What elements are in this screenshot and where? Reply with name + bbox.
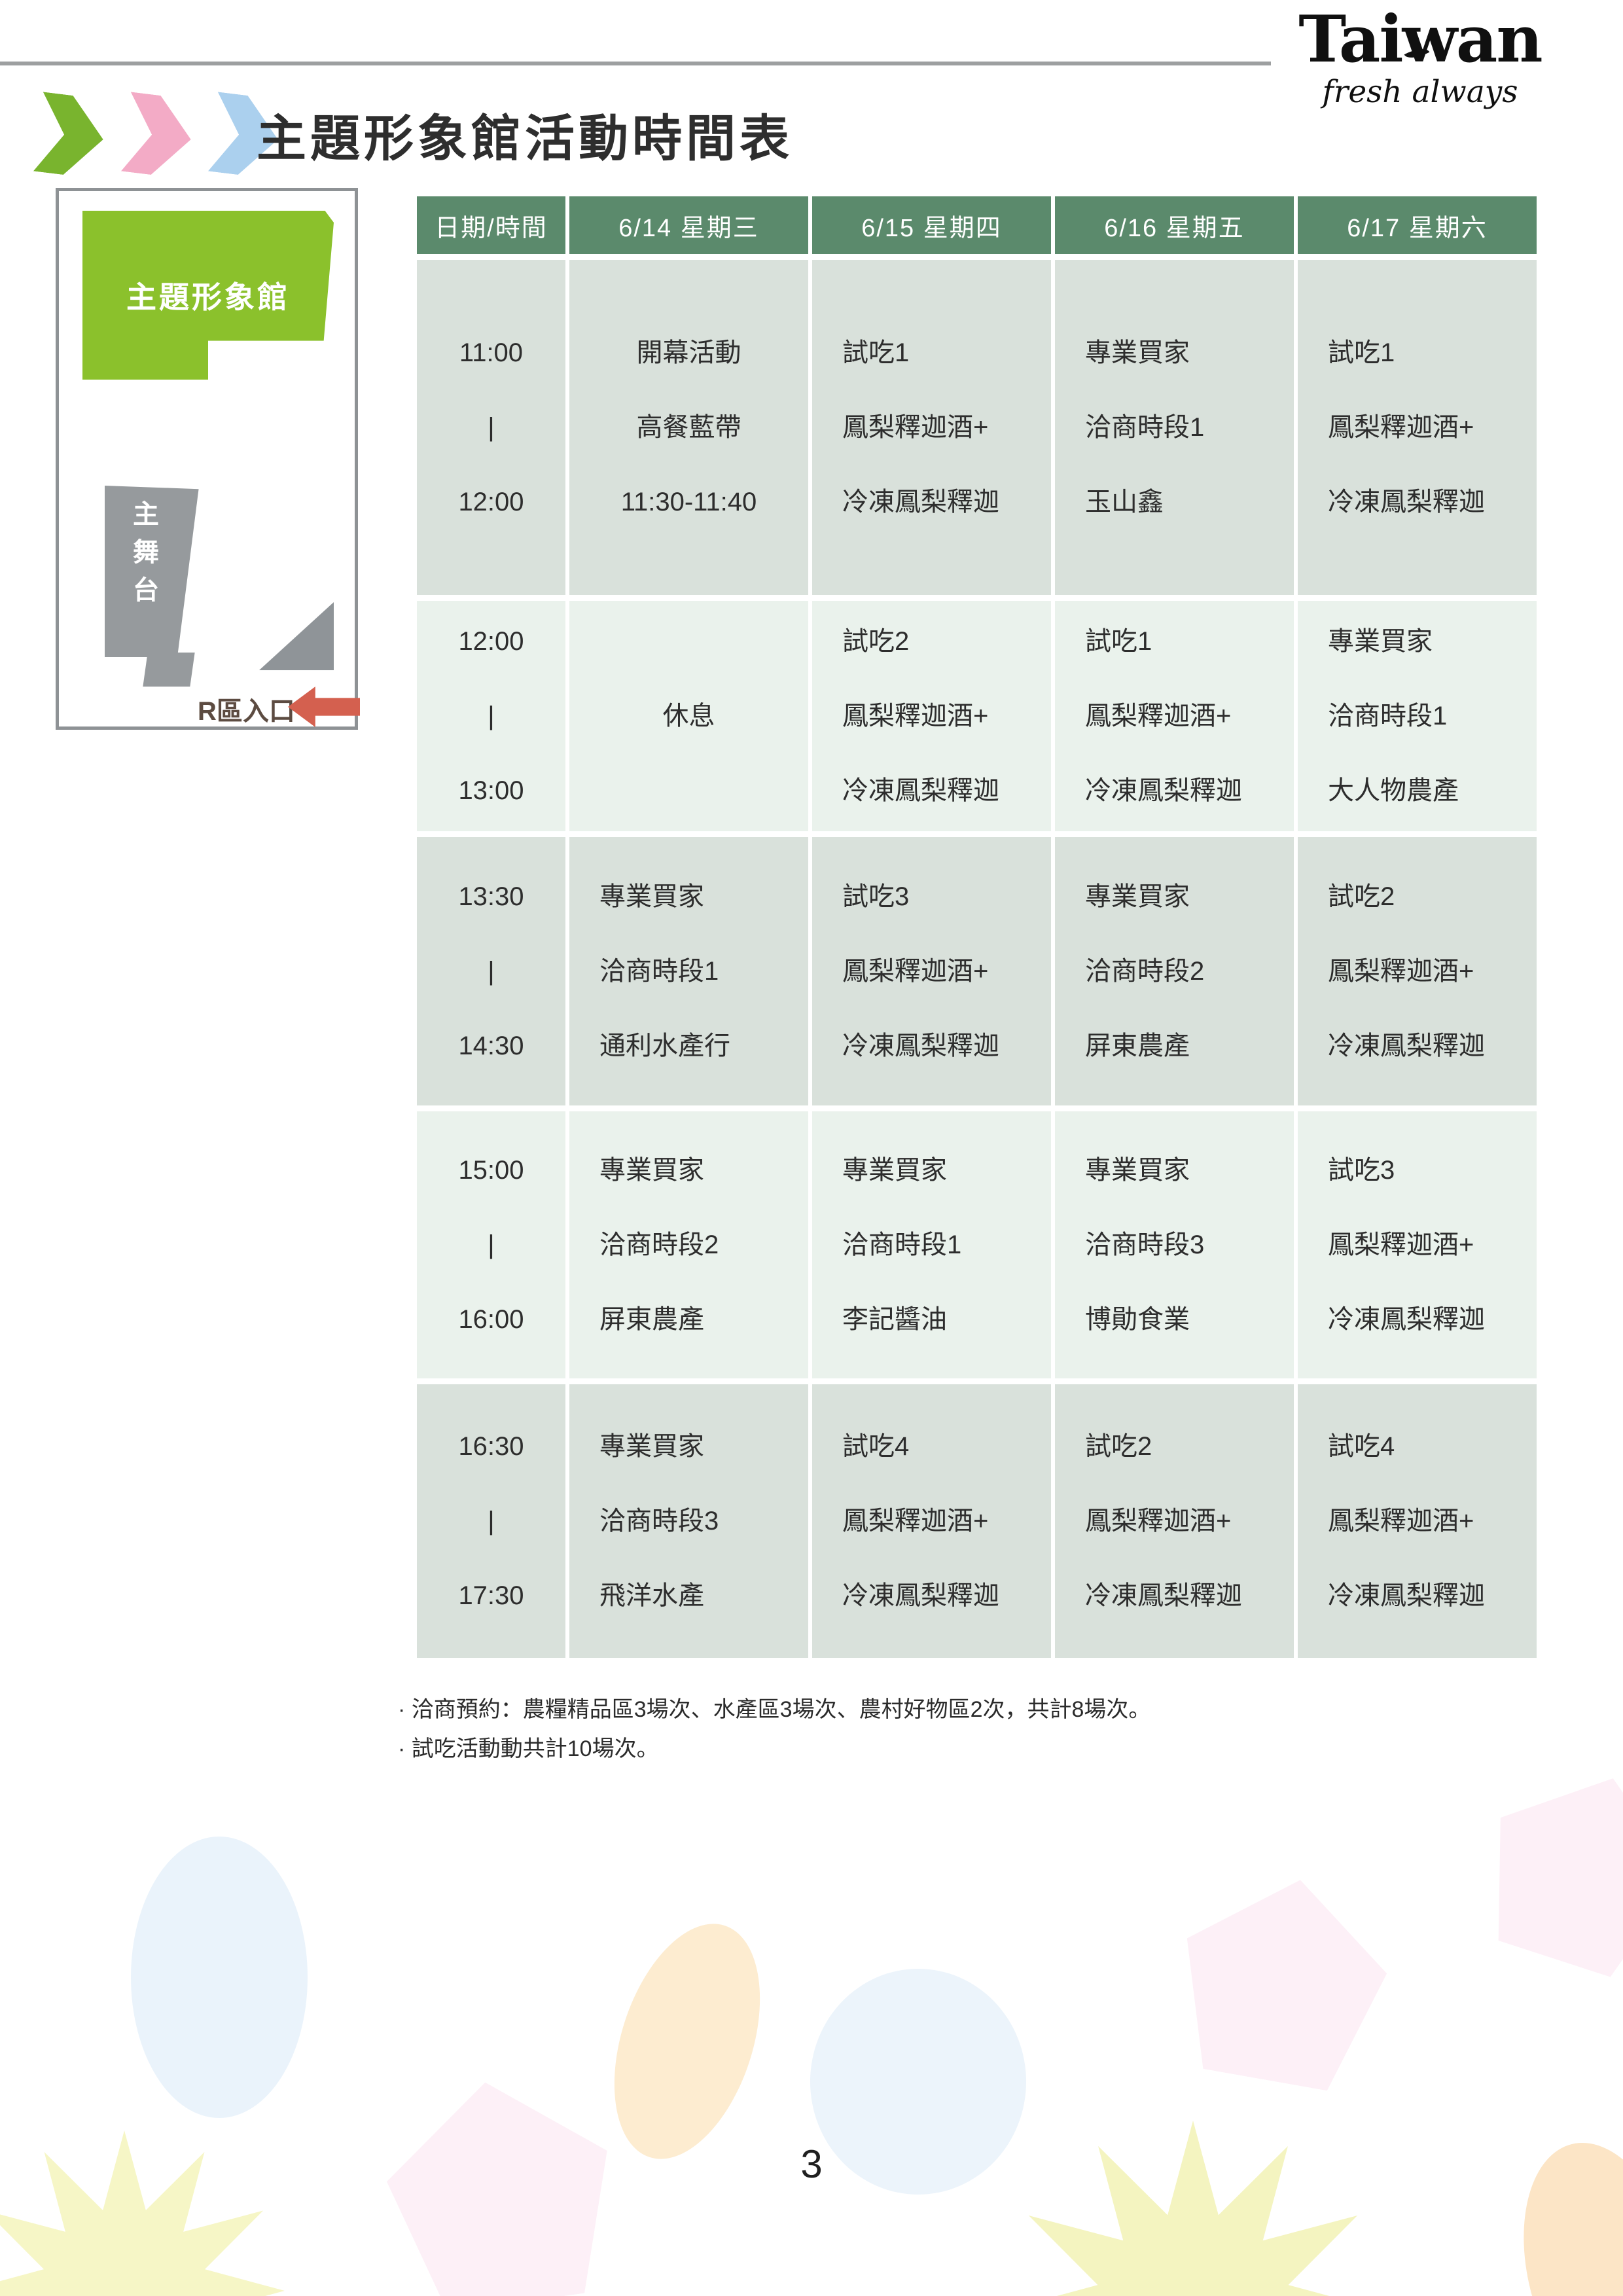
schedule-cell: 專業買家 洽商時段3 飛洋水產 xyxy=(569,1384,808,1658)
header-rule xyxy=(0,62,1271,65)
decor-blue-ellipse-left xyxy=(131,1837,308,2118)
schedule-cell: 試吃3 鳳梨釋迦酒+ 冷凍鳳梨釋迦 xyxy=(1298,1111,1537,1378)
schedule-cell: 試吃2 鳳梨釋迦酒+ 冷凍鳳梨釋迦 xyxy=(1055,1384,1294,1658)
main-stage-label: 主舞台 xyxy=(124,500,162,614)
schedule-cell: 專業買家 洽商時段1 玉山鑫 xyxy=(1055,260,1294,595)
column-header: 6/15 星期四 xyxy=(812,196,1051,254)
schedule-cell: 試吃2 鳳梨釋迦酒+ 冷凍鳳梨釋迦 xyxy=(812,601,1051,831)
chevron-icon xyxy=(33,92,108,179)
column-header: 6/16 星期五 xyxy=(1055,196,1294,254)
schedule-cell: 試吃1 鳳梨釋迦酒+ 冷凍鳳梨釋迦 xyxy=(1298,260,1537,595)
schedule-cell: 休息 xyxy=(569,601,808,831)
theme-hall-label: 主題形象館 xyxy=(126,274,290,317)
footnotes: · 洽商預約：農糧精品區3場次、水產區3場次、農村好物區2次，共計8場次。 · … xyxy=(398,1690,1150,1768)
chevron-icon xyxy=(121,92,196,179)
footnote-line: · 試吃活動動共計10場次。 xyxy=(398,1729,1150,1768)
column-header: 6/14 星期三 xyxy=(569,196,808,254)
time-cell: 11:00 | 12:00 xyxy=(417,260,565,595)
footnote-line: · 洽商預約：農糧精品區3場次、水產區3場次、農村好物區2次，共計8場次。 xyxy=(398,1690,1150,1729)
taiwan-logo: Taiwan fresh always xyxy=(1293,7,1548,110)
schedule-cell: 試吃4 鳳梨釋迦酒+ 冷凍鳳梨釋迦 xyxy=(1298,1384,1537,1658)
schedule-table: 日期/時間 6/14 星期三 6/15 星期四 6/16 星期五 6/17 星期… xyxy=(417,196,1537,1658)
time-cell: 13:30 | 14:30 xyxy=(417,837,565,1105)
main-stage-shape: 主舞台 xyxy=(105,486,202,657)
schedule-cell: 試吃1 鳳梨釋迦酒+ 冷凍鳳梨釋迦 xyxy=(812,260,1051,595)
schedule-cell: 試吃1 鳳梨釋迦酒+ 冷凍鳳梨釋迦 xyxy=(1055,601,1294,831)
decor-pink-pentagon-center xyxy=(1165,1862,1400,2097)
floor-map: 主題形象館 主舞台 R區入口 xyxy=(56,188,358,730)
schedule-cell: 開幕活動 高餐藍帶 11:30-11:40 xyxy=(569,260,808,595)
entrance-label: R區入口 xyxy=(198,690,295,728)
decor-pink-pentagon-topright xyxy=(1464,1749,1623,1988)
schedule-cell: 專業買家 洽商時段1 大人物農產 xyxy=(1298,601,1537,831)
schedule-cell: 專業買家 洽商時段3 博勛食業 xyxy=(1055,1111,1294,1378)
schedule-cell: 專業買家 洽商時段2 屏東農產 xyxy=(1055,837,1294,1105)
column-header: 6/17 星期六 xyxy=(1298,196,1537,254)
schedule-cell: 試吃2 鳳梨釋迦酒+ 冷凍鳳梨釋迦 xyxy=(1298,837,1537,1105)
schedule-cell: 試吃3 鳳梨釋迦酒+ 冷凍鳳梨釋迦 xyxy=(812,837,1051,1105)
time-cell: 16:30 | 17:30 xyxy=(417,1384,565,1658)
taiwan-logo-text: Taiwan xyxy=(1293,7,1548,74)
schedule-cell: 試吃4 鳳梨釋迦酒+ 冷凍鳳梨釋迦 xyxy=(812,1384,1051,1658)
page-number: 3 xyxy=(0,2142,1623,2187)
taiwan-logo-tagline: fresh always xyxy=(1293,74,1548,110)
schedule-cell: 專業買家 洽商時段1 通利水產行 xyxy=(569,837,808,1105)
schedule-cell: 專業買家 洽商時段2 屏東農產 xyxy=(569,1111,808,1378)
left-arrow-icon xyxy=(288,687,360,727)
time-cell: 15:00 | 16:00 xyxy=(417,1111,565,1378)
page-title: 主題形象館活動時間表 xyxy=(257,98,793,170)
theme-hall-shape: 主題形象館 xyxy=(82,211,334,380)
main-stage-foot xyxy=(143,653,194,687)
schedule-cell: 專業買家 洽商時段1 李記醬油 xyxy=(812,1111,1051,1378)
map-triangle xyxy=(259,602,334,670)
column-header: 日期/時間 xyxy=(417,196,565,254)
document-page: Taiwan fresh always 主題形象館活動時間表 主題形象館 主舞台… xyxy=(0,0,1623,2296)
time-cell: 12:00 | 13:00 xyxy=(417,601,565,831)
decor-cream-egg xyxy=(587,1905,787,2178)
